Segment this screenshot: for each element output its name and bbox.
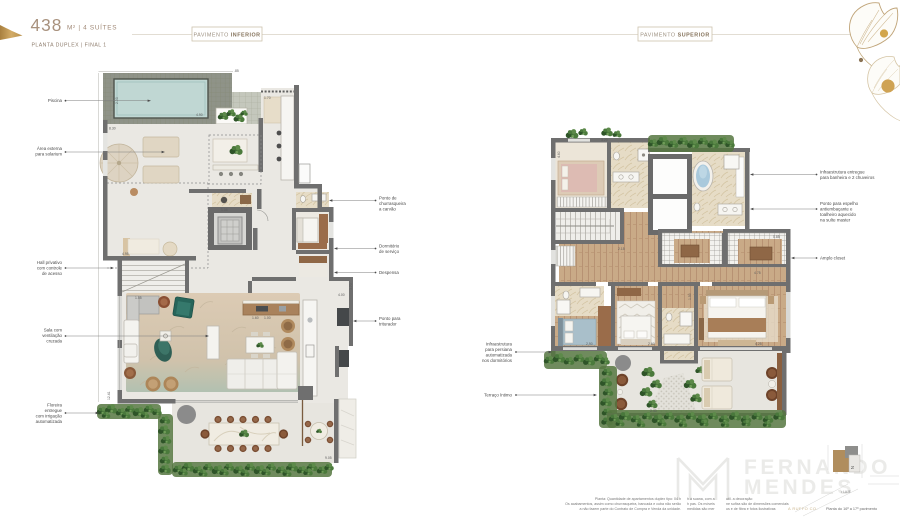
svg-text:de serviço: de serviço (379, 249, 400, 254)
svg-text:medidas são mer: medidas são mer (687, 507, 715, 511)
svg-text:churrasqueira: churrasqueira (379, 201, 406, 206)
svg-text:2.90: 2.90 (586, 342, 593, 346)
svg-text:a carvão: a carvão (379, 207, 396, 212)
svg-text:Infraestrutura: Infraestrutura (486, 342, 513, 347)
svg-text:4.95: 4.95 (122, 252, 129, 256)
svg-text:2.40: 2.40 (650, 409, 657, 413)
svg-text:4.00: 4.00 (338, 293, 345, 297)
svg-text:438: 438 (31, 15, 63, 35)
svg-text:12.41: 12.41 (107, 391, 111, 400)
svg-text:Terraço íntimo: Terraço íntimo (484, 393, 512, 398)
svg-text:Ponto para espelho: Ponto para espelho (820, 201, 859, 206)
svg-text:triturador: triturador (379, 322, 397, 327)
svg-text:h pas. Os móveis: h pas. Os móveis (687, 502, 715, 506)
svg-text:0.85: 0.85 (773, 235, 780, 239)
svg-text:Planta: Quantidade de apartame: Planta: Quantidade de apartamentos duple… (595, 497, 681, 501)
svg-text:.85: .85 (234, 69, 239, 73)
svg-text:automatizada: automatizada (486, 353, 513, 358)
svg-text:util. a decoração: util. a decoração (726, 497, 752, 501)
svg-text:MENDES: MENDES (744, 476, 855, 499)
svg-text:A RUFFO CO.: A RUFFO CO. (788, 506, 818, 511)
svg-text:com irrigação: com irrigação (36, 414, 63, 419)
svg-text:Infraestrutura entregue: Infraestrutura entregue (820, 170, 865, 175)
svg-text:4.75: 4.75 (754, 271, 761, 275)
svg-text:N: N (850, 466, 855, 469)
svg-text:• LAJE: • LAJE (841, 490, 852, 494)
svg-text:cruzada: cruzada (46, 339, 62, 344)
svg-text:1.60: 1.60 (252, 316, 259, 320)
svg-text:Dormitório: Dormitório (379, 244, 400, 249)
svg-text:Despensa: Despensa (379, 270, 399, 275)
svg-text:1.70: 1.70 (264, 96, 271, 100)
svg-text:2.60: 2.60 (648, 342, 655, 346)
svg-text:antiembaçante e: antiembaçante e (820, 207, 853, 212)
svg-text:Área externa: Área externa (37, 146, 63, 151)
svg-text:2.15: 2.15 (618, 247, 625, 251)
svg-text:para persiana: para persiana (485, 347, 512, 352)
svg-text:4.25: 4.25 (755, 342, 762, 346)
svg-text:9.05: 9.05 (325, 456, 332, 460)
svg-text:com controle: com controle (37, 266, 63, 271)
svg-text:PAVIMENTO INFERIOR: PAVIMENTO INFERIOR (193, 32, 260, 38)
svg-text:Piscina: Piscina (48, 98, 63, 103)
svg-text:Hall privativo: Hall privativo (37, 260, 63, 265)
svg-text:3.70: 3.70 (349, 283, 353, 290)
svg-text:de acesso: de acesso (42, 271, 63, 276)
svg-text:Sala com: Sala com (44, 328, 63, 333)
svg-text:entregue: entregue (45, 408, 63, 413)
svg-text:automatizada: automatizada (36, 419, 63, 424)
svg-text:nos dormitórios: nos dormitórios (482, 358, 513, 363)
svg-text:8.30: 8.30 (109, 127, 116, 131)
svg-text:Os acabamentos, assim como chu: Os acabamentos, assim como churrasqueira… (565, 502, 681, 506)
svg-text:Ponto de: Ponto de (379, 196, 397, 201)
svg-text:us e de fibra e fotos ilustrat: us e de fibra e fotos ilustrativas (726, 507, 776, 511)
svg-text:para solarium: para solarium (35, 152, 62, 157)
svg-text:1.55: 1.55 (135, 296, 142, 300)
svg-text:toalheiro aquecido: toalheiro aquecido (820, 212, 856, 217)
svg-text:4.60: 4.60 (557, 151, 561, 158)
svg-text:h á suana, com a: h á suana, com a (687, 497, 715, 501)
svg-text:M² | 4 SUÍTES: M² | 4 SUÍTES (67, 23, 117, 32)
svg-text:ne sufixa são de dimensões com: ne sufixa são de dimensões comerciais (726, 502, 789, 506)
svg-text:Ponto para: Ponto para (379, 316, 401, 321)
svg-text:a não fazem parte do Contrato: a não fazem parte do Contrato de Compra … (580, 507, 682, 511)
svg-text:PAVIMENTO SUPERIOR: PAVIMENTO SUPERIOR (640, 32, 710, 38)
svg-text:para banheira e 2 chuveiros: para banheira e 2 chuveiros (820, 175, 875, 180)
svg-text:3.20: 3.20 (601, 138, 608, 142)
svg-text:1.05: 1.05 (221, 208, 228, 212)
svg-text:ventilação: ventilação (42, 333, 62, 338)
svg-text:Planta do 16º a 17º pavimento: Planta do 16º a 17º pavimento (826, 507, 877, 511)
svg-text:4.90: 4.90 (196, 113, 203, 117)
svg-text:na suíte master: na suíte master (820, 218, 851, 223)
svg-text:PLANTA DUPLEX | FINAL 1: PLANTA DUPLEX | FINAL 1 (32, 43, 107, 49)
svg-text:Floreira: Floreira (47, 403, 62, 408)
svg-text:Amplo closet: Amplo closet (820, 256, 846, 261)
svg-text:1.50: 1.50 (688, 293, 692, 300)
svg-text:1.00: 1.00 (264, 316, 271, 320)
